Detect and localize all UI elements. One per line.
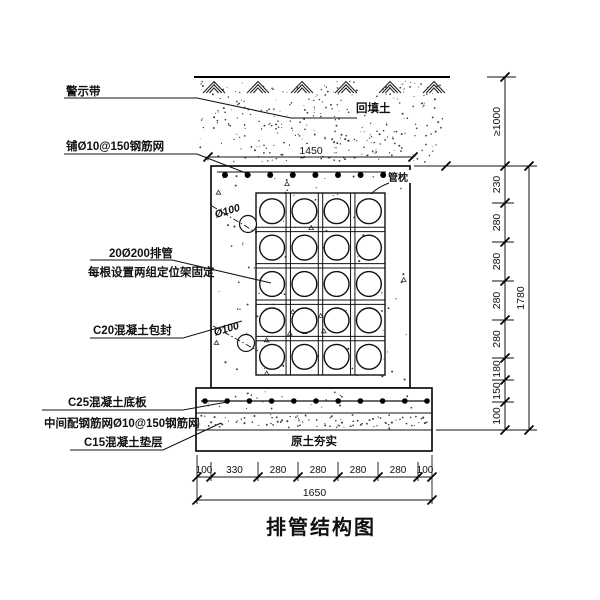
dim-1780: 1780 <box>515 286 527 310</box>
backfill-callout: 回填土 <box>352 101 398 115</box>
encasement-block <box>211 166 410 388</box>
dim-r0: 230 <box>491 176 503 194</box>
drain-pipe-circle <box>238 335 255 352</box>
dim-r3: 280 <box>491 292 503 310</box>
drawing-canvas: 原土夯实 Ø100 Ø100 管枕 回填土 警示带 铺Ø10@150钢筋网 20… <box>0 0 600 600</box>
backfill-label: 回填土 <box>356 101 391 115</box>
soil-hatch-icon <box>203 82 445 94</box>
dim-1450: 1450 <box>299 145 323 157</box>
cushion-label: C15混凝土垫层 <box>84 435 163 449</box>
dim-cover: ≥1000 <box>491 107 503 136</box>
warning-tape-label: 警示带 <box>65 84 101 98</box>
dim-top-width: 1450 <box>208 144 413 157</box>
drawing-title: 排管结构图 <box>266 515 376 539</box>
dim-b4: 280 <box>350 465 367 476</box>
encasement-label: C20混凝土包封 <box>93 323 172 337</box>
dim-r4: 280 <box>491 330 503 348</box>
dim-right: ≥1000 230 280 280 280 280 180 150 100 17… <box>414 77 537 430</box>
dim-bottom: 100 330 280 280 280 280 100 1650 <box>196 455 434 504</box>
dim-r2: 280 <box>491 253 503 271</box>
compacted-soil-label: 原土夯实 <box>291 434 337 448</box>
ground-line <box>194 77 450 93</box>
dim-b0: 100 <box>196 465 213 476</box>
dim-1650: 1650 <box>303 487 327 499</box>
drain-pipe-circle <box>240 216 257 233</box>
dim-b2: 280 <box>270 465 287 476</box>
base-layers: 原土夯实 <box>196 388 432 451</box>
dim-b5: 280 <box>390 465 407 476</box>
top-mesh-label: 铺Ø10@150钢筋网 <box>66 139 164 153</box>
pipe-pillow-label: 管枕 <box>388 171 408 184</box>
dim-r1: 280 <box>491 214 503 232</box>
dim-b3: 280 <box>310 465 327 476</box>
pipe-fixing-label: 每根设置两组定位架固定 <box>88 265 215 279</box>
dim-b6: 100 <box>417 465 434 476</box>
base-slab-label: C25混凝土底板 <box>68 395 147 409</box>
dim-b1: 330 <box>226 465 243 476</box>
dim-r7: 100 <box>491 407 503 425</box>
duct-bank-drawing: 原土夯实 Ø100 Ø100 管枕 回填土 警示带 铺Ø10@150钢筋网 20… <box>0 0 600 600</box>
slab-mesh-label: 中间配钢筋网Ø10@150钢筋网 <box>44 416 200 430</box>
pipe-spec-label: 20Ø200排管 <box>109 246 173 260</box>
